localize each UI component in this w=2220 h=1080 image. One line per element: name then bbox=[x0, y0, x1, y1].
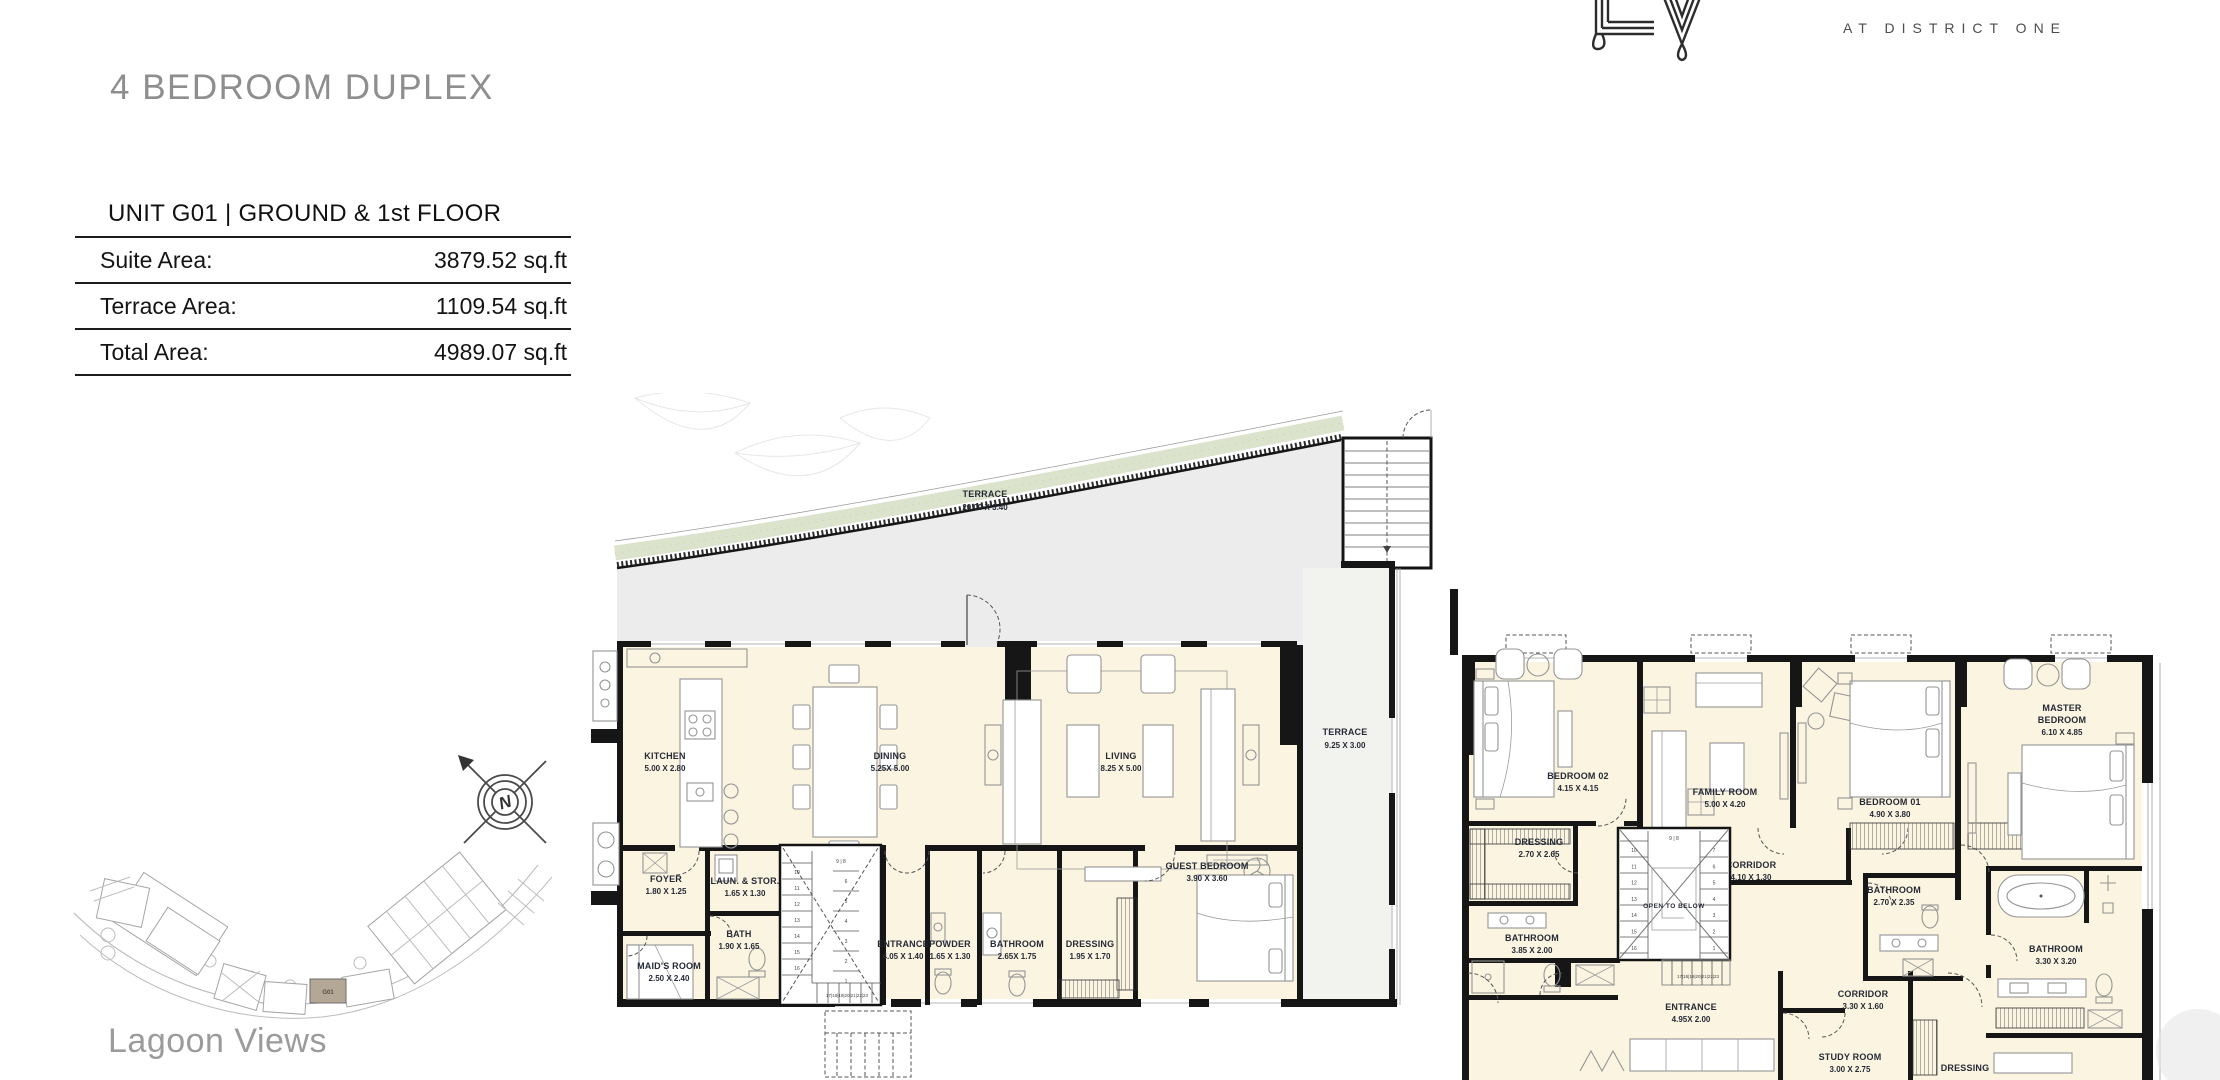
stair-number: 15 bbox=[1631, 930, 1637, 936]
room-label: LIVING bbox=[1105, 751, 1136, 761]
stair-top-numbers: 9 | 8 bbox=[836, 859, 846, 865]
page-title: 4 BEDROOM DUPLEX bbox=[110, 68, 494, 108]
appliances-left bbox=[591, 651, 619, 905]
unit-info-header: UNIT G01 | GROUND & 1st FLOOR bbox=[75, 196, 571, 238]
table-row-suite-area: Suite Area: 3879.52 sq.ft bbox=[75, 238, 571, 284]
room-label: BATHROOM bbox=[1505, 933, 1559, 943]
entrance-porch bbox=[825, 1011, 911, 1077]
staircase: 10111213141516 654321 9 | 8 17|18|19|20|… bbox=[780, 845, 881, 1005]
stair-number: 16 bbox=[1631, 946, 1637, 952]
room-dim: 5.25X 5.00 bbox=[871, 764, 910, 773]
room-label-line2: BEDROOM bbox=[2038, 715, 2086, 725]
room-dim: 8.25 X 5.00 bbox=[1101, 764, 1142, 773]
site-location-map: G01 bbox=[60, 843, 580, 1033]
site-map-caption: Lagoon Views bbox=[108, 1022, 327, 1061]
lv-monogram-icon bbox=[1593, 0, 1710, 60]
room-label: DRESSING bbox=[1515, 837, 1564, 847]
room-label: BEDROOM 02 bbox=[1547, 771, 1609, 781]
stair-number: 7 bbox=[1713, 848, 1716, 854]
room-dim: 1.65 X 1.30 bbox=[930, 952, 971, 961]
balcony-right bbox=[2156, 663, 2220, 1080]
room-label: STUDY ROOM bbox=[1819, 1052, 1882, 1062]
stair-number: 14 bbox=[1631, 913, 1637, 919]
room-dim: 9.25 X 3.00 bbox=[1325, 741, 1366, 750]
stair-number: 10 bbox=[794, 870, 800, 876]
room-dim: 5.00 X 2.80 bbox=[645, 764, 686, 773]
stair-number: 3 bbox=[845, 939, 848, 945]
room-dim: 1.65 X 1.30 bbox=[725, 889, 766, 898]
room-label: CORRIDOR bbox=[1726, 860, 1777, 870]
exterior-stair bbox=[1341, 410, 1431, 568]
brand-logo-lv bbox=[1588, 0, 1712, 62]
room-dim: 4.15 X 4.15 bbox=[1558, 784, 1599, 793]
row-value: 3879.52 sq.ft bbox=[434, 247, 567, 274]
room-label: KITCHEN bbox=[644, 751, 685, 761]
brand-tagline: AT DISTRICT ONE bbox=[1843, 20, 2067, 36]
tree-icon bbox=[2156, 1009, 2220, 1080]
room-dim: 6.10 X 4.85 bbox=[2042, 728, 2083, 737]
stair-run-numbers: 17|18|19|20|21|22|23 bbox=[1677, 974, 1720, 979]
room-dim: 3.85 X 2.00 bbox=[1512, 946, 1553, 955]
stair-number: 13 bbox=[1631, 897, 1637, 903]
room-label: DRESSING bbox=[1066, 939, 1115, 949]
room-dim: 2.65X 1.75 bbox=[998, 952, 1037, 961]
room-dim: 1.80 X 1.25 bbox=[646, 887, 687, 896]
stair-number: 11 bbox=[1631, 864, 1636, 870]
room-label: BATHROOM bbox=[2029, 944, 2083, 954]
stair-number: 2 bbox=[845, 959, 848, 965]
stair-number: 2 bbox=[1713, 930, 1716, 936]
stair-number: 10 bbox=[1631, 848, 1637, 854]
room-dim: 4.05 X 1.40 bbox=[883, 952, 924, 961]
ground-floor-plan: TERRACE 20.00 X 3.40 TERRACE 9.25 X 3.00 bbox=[585, 393, 1447, 1080]
stair-number: 3 bbox=[1713, 913, 1716, 919]
room-label: DRESSING bbox=[1941, 1063, 1990, 1073]
stair-number: 16 bbox=[794, 966, 800, 972]
compass-north-icon: N bbox=[450, 747, 560, 857]
room-label: BATHROOM bbox=[1867, 885, 1921, 895]
stair-number: 1 bbox=[1713, 946, 1716, 952]
room-dim: 4.95X 2.00 bbox=[1672, 1015, 1711, 1024]
stair-number: 4 bbox=[1713, 897, 1716, 903]
stair-number: 5 bbox=[845, 899, 848, 905]
unit-info-table: UNIT G01 | GROUND & 1st FLOOR Suite Area… bbox=[75, 196, 571, 376]
room-dim: 4.10 X 1.30 bbox=[1731, 873, 1772, 882]
stair-number: 5 bbox=[1713, 881, 1716, 887]
room-dim: 2.70 X 2.35 bbox=[1874, 898, 1915, 907]
room-label: MAID'S ROOM bbox=[637, 961, 701, 971]
room-label: FAMILY ROOM bbox=[1693, 787, 1758, 797]
stair-run-numbers: 17|18|19|20|21|22|23 bbox=[826, 993, 869, 998]
terrace-main: TERRACE 20.00 X 3.40 bbox=[615, 411, 1343, 645]
site-buildings-right bbox=[368, 852, 544, 984]
stair-number: 12 bbox=[794, 902, 800, 908]
room-label: FOYER bbox=[650, 874, 682, 884]
stair-number: 12 bbox=[1631, 881, 1637, 887]
first-floor-plan: BEDROOM 02 4.15 X 4.15 DRESSING 2.70 X 2… bbox=[1448, 583, 2220, 1080]
room-label: BATH bbox=[726, 929, 751, 939]
room-label: GUEST BEDROOM bbox=[1165, 861, 1248, 871]
row-value: 1109.54 sq.ft bbox=[436, 293, 567, 320]
stair-top-numbers: 9 | 8 bbox=[1669, 836, 1679, 842]
table-row-total-area: Total Area: 4989.07 sq.ft bbox=[75, 330, 571, 376]
room-dim: 3.90 X 3.60 bbox=[1187, 874, 1228, 883]
room-label: DINING bbox=[874, 751, 907, 761]
interior-floor bbox=[623, 645, 1297, 1005]
stair-number: 1 bbox=[845, 979, 848, 985]
stair-number: 6 bbox=[1713, 864, 1716, 870]
terrace-side: TERRACE 9.25 X 3.00 bbox=[1303, 568, 1400, 1005]
stair-number: 6 bbox=[845, 879, 848, 885]
room-dim: 3.00 X 2.75 bbox=[1830, 1065, 1871, 1074]
stair-note: OPEN TO BELOW bbox=[1643, 903, 1705, 910]
room-label: ENTRANCE bbox=[1665, 1002, 1717, 1012]
room-label: ENTRANCE bbox=[877, 939, 929, 949]
room-label: CORRIDOR bbox=[1838, 989, 1889, 999]
stair-number: 11 bbox=[794, 886, 799, 892]
room-dim: 3.30 X 1.60 bbox=[1843, 1002, 1884, 1011]
table-row-terrace-area: Terrace Area: 1109.54 sq.ft bbox=[75, 284, 571, 330]
row-label: Terrace Area: bbox=[100, 293, 237, 320]
stair-number: 4 bbox=[845, 919, 848, 925]
room-label: LAUN. & STOR. bbox=[711, 876, 780, 886]
room-dim: 1.90 X 1.65 bbox=[719, 942, 760, 951]
site-buildings-center: G01 bbox=[214, 964, 394, 1015]
stair-number: 14 bbox=[794, 934, 800, 940]
unit-marker-label: G01 bbox=[322, 990, 334, 996]
room-dim: 4.90 X 3.80 bbox=[1870, 810, 1911, 819]
room-label-line1: MASTER bbox=[2042, 703, 2082, 713]
row-value: 4989.07 sq.ft bbox=[434, 339, 567, 366]
room-label: POWDER bbox=[929, 939, 971, 949]
room-dim: 3.30 X 3.20 bbox=[2036, 957, 2077, 966]
room-dim: 2.70 X 2.65 bbox=[1519, 850, 1560, 859]
room-label: TERRACE bbox=[1323, 727, 1368, 737]
leaf-decor-icon bbox=[635, 393, 930, 476]
stair-number: 13 bbox=[794, 918, 800, 924]
room-label: BEDROOM 01 bbox=[1859, 797, 1921, 807]
room-dim: 20.00 X 3.40 bbox=[962, 503, 1008, 512]
room-dim: 1.95 X 1.70 bbox=[1070, 952, 1111, 961]
row-label: Total Area: bbox=[100, 339, 209, 366]
stair-number: 15 bbox=[794, 950, 800, 956]
room-label: TERRACE bbox=[963, 489, 1008, 499]
room-dim: 2.50 X 2.40 bbox=[649, 974, 690, 983]
room-dim: 5.00 X 4.20 bbox=[1705, 800, 1746, 809]
room-label: BATHROOM bbox=[990, 939, 1044, 949]
row-label: Suite Area: bbox=[100, 247, 213, 274]
